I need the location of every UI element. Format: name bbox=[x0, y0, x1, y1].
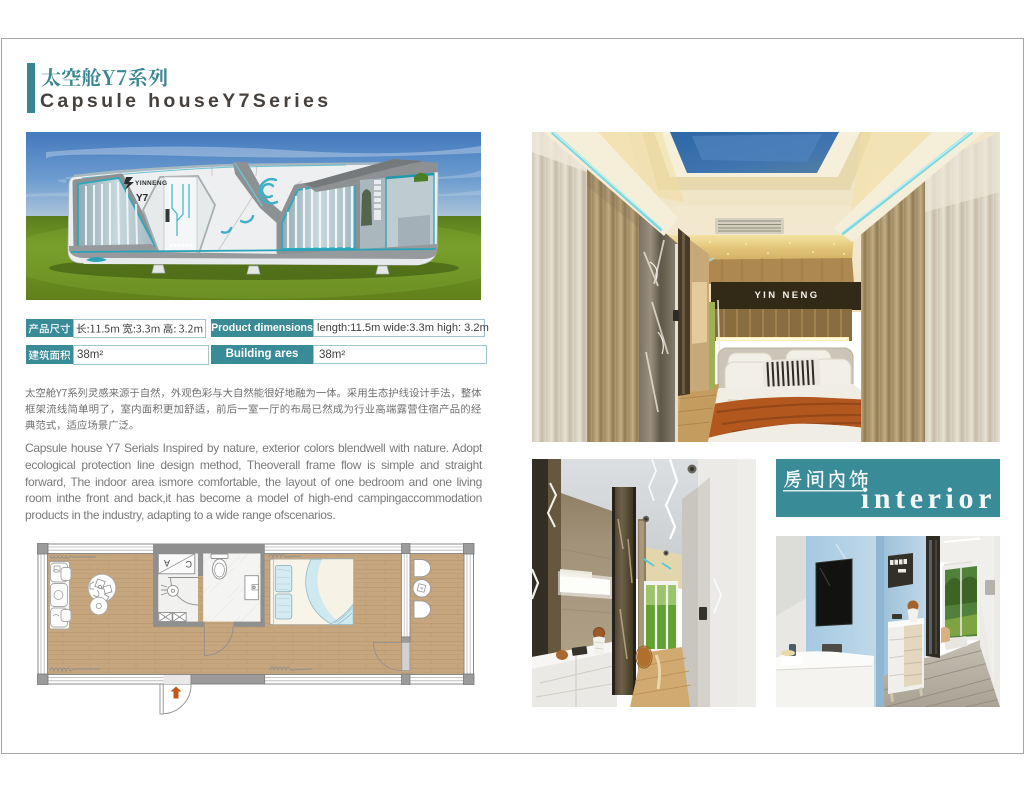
svg-text:interior: interior bbox=[861, 482, 996, 515]
svg-text:A: A bbox=[164, 558, 170, 568]
svg-text:Y7: Y7 bbox=[136, 193, 149, 204]
svg-text:YIN NENG: YIN NENG bbox=[754, 290, 819, 301]
svg-text:C: C bbox=[185, 559, 192, 569]
svg-text:YINNENG: YINNENG bbox=[135, 180, 167, 187]
